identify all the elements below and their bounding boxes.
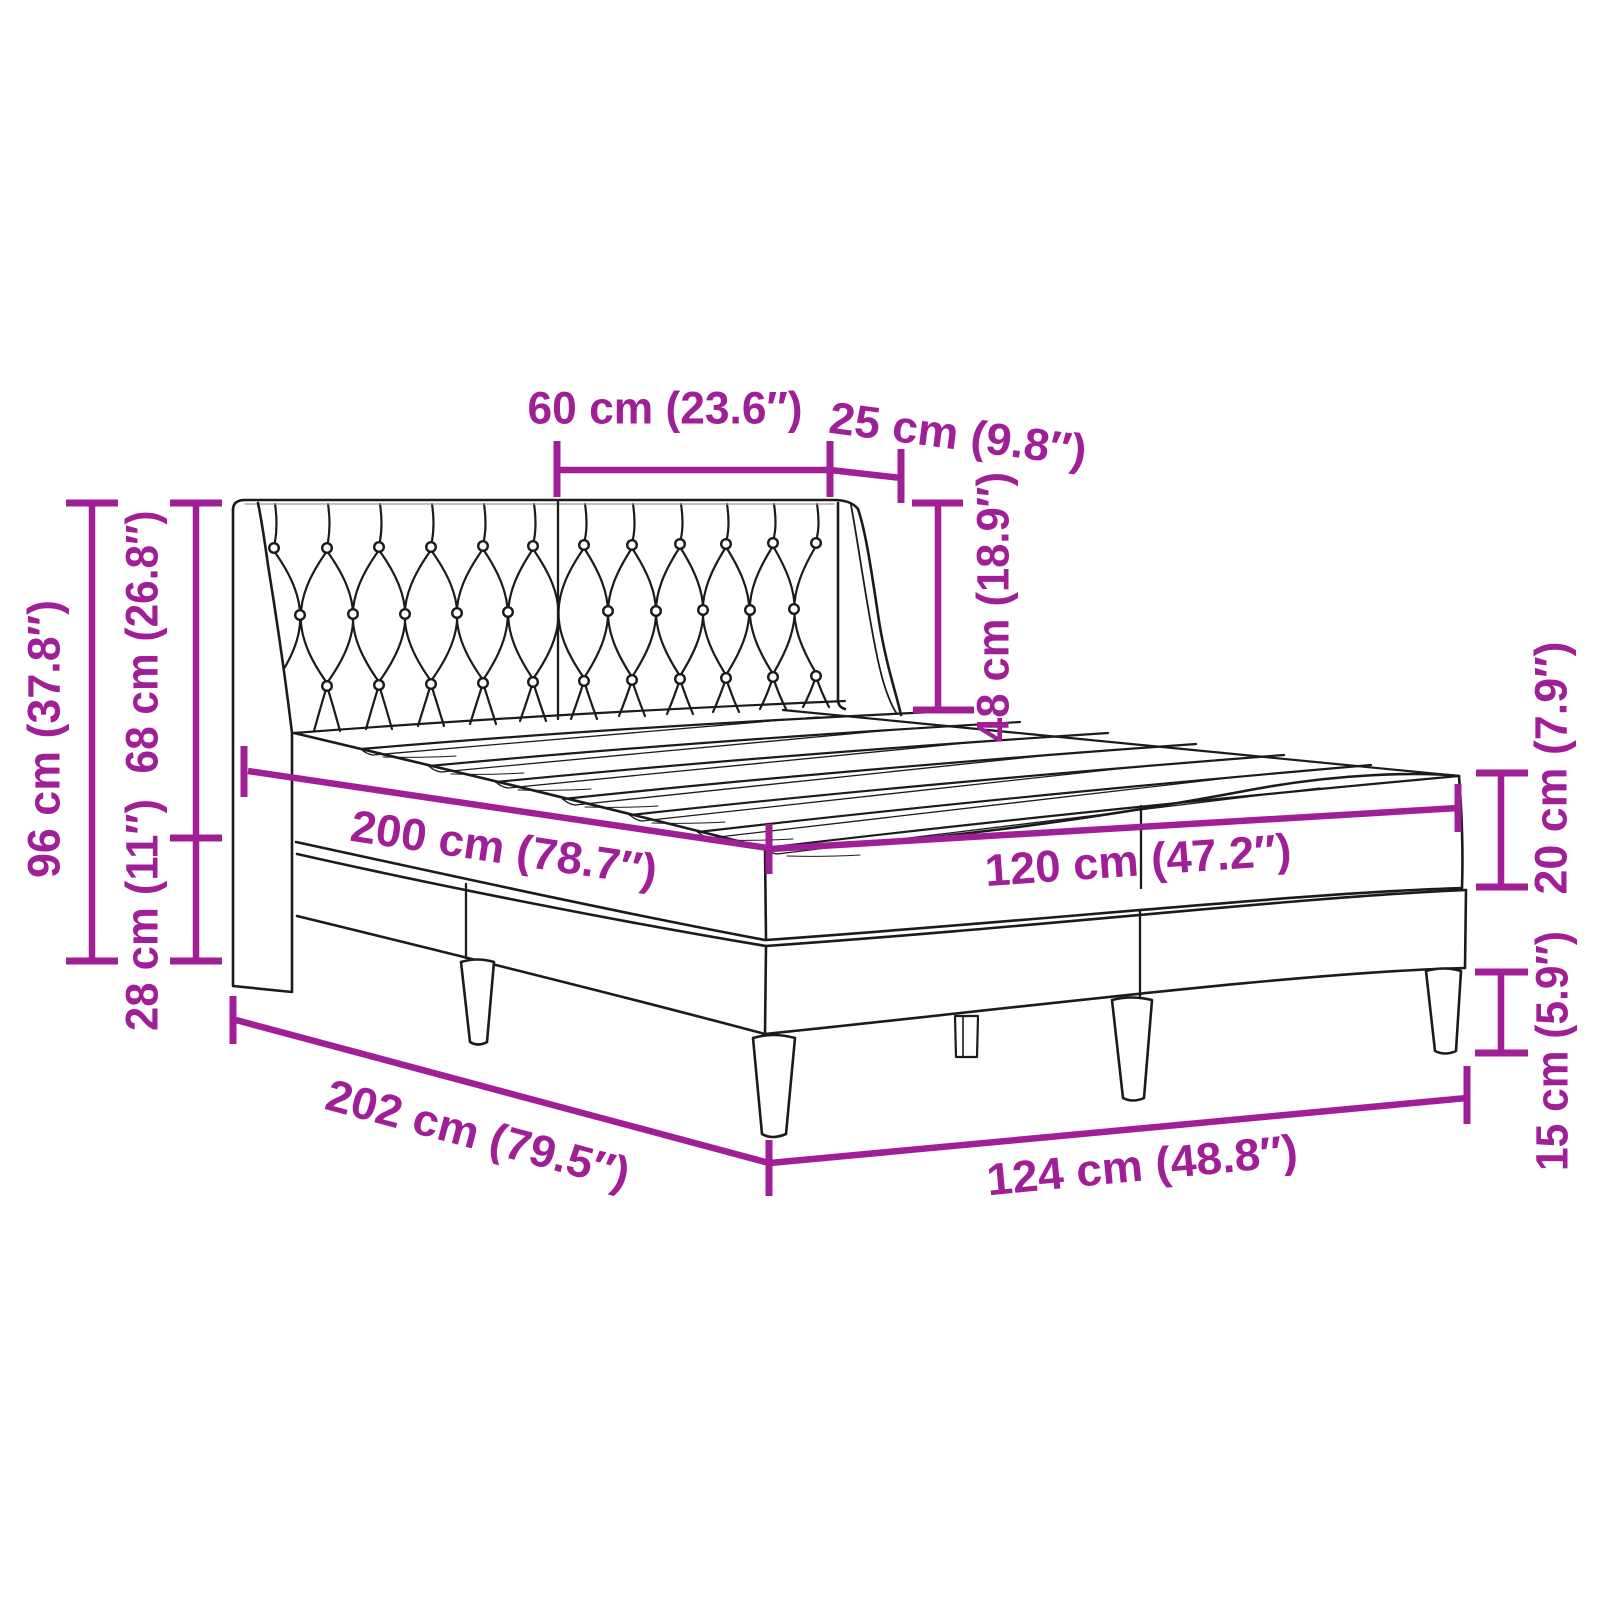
svg-text:96 cm (37.8″): 96 cm (37.8″)	[19, 600, 70, 878]
svg-text:20 cm (7.9″): 20 cm (7.9″)	[1526, 642, 1577, 895]
svg-text:68 cm (26.8″): 68 cm (26.8″)	[117, 511, 168, 774]
svg-text:48 cm (18.9″): 48 cm (18.9″)	[968, 472, 1019, 742]
svg-text:15 cm (5.9″): 15 cm (5.9″)	[1527, 931, 1578, 1171]
svg-text:60 cm (23.6″): 60 cm (23.6″)	[528, 383, 803, 434]
svg-text:28 cm (11″): 28 cm (11″)	[117, 799, 168, 1031]
